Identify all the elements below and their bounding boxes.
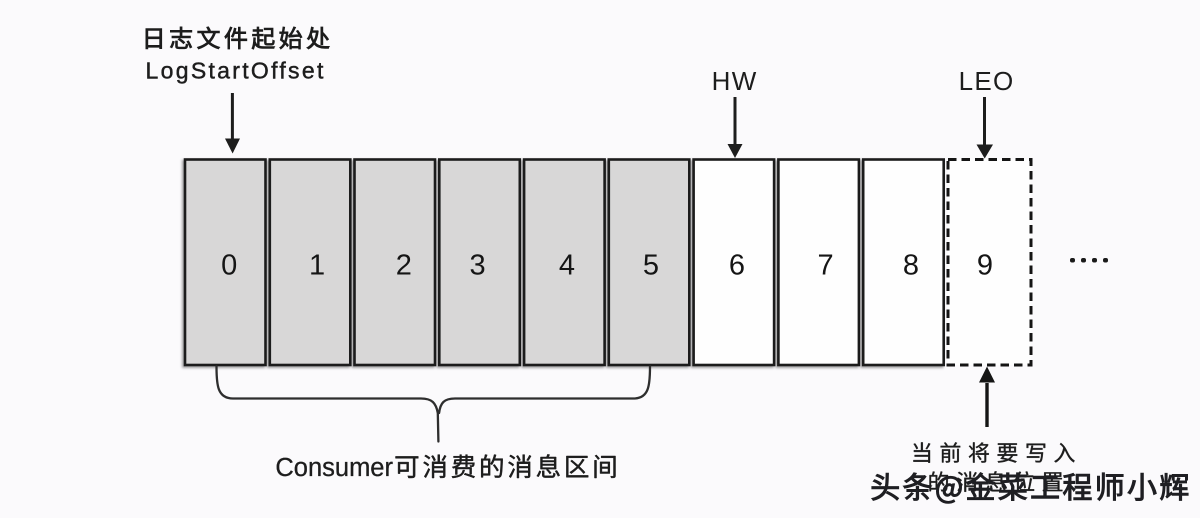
svg-text:9: 9 [977, 250, 993, 282]
svg-text:2: 2 [396, 250, 412, 282]
svg-text:LogStartOffset: LogStartOffset [146, 57, 326, 83]
svg-text:Consumer: Consumer [275, 454, 393, 482]
svg-text:3: 3 [470, 250, 486, 282]
svg-text:6: 6 [729, 250, 745, 282]
svg-text:0: 0 [221, 250, 237, 282]
svg-text:LEO: LEO [959, 66, 1015, 96]
svg-text:5: 5 [643, 250, 659, 282]
svg-text:7: 7 [818, 250, 834, 282]
svg-text:HW: HW [712, 66, 758, 96]
svg-text:8: 8 [903, 250, 919, 282]
svg-text:4: 4 [559, 250, 575, 282]
svg-text:1: 1 [309, 250, 325, 282]
